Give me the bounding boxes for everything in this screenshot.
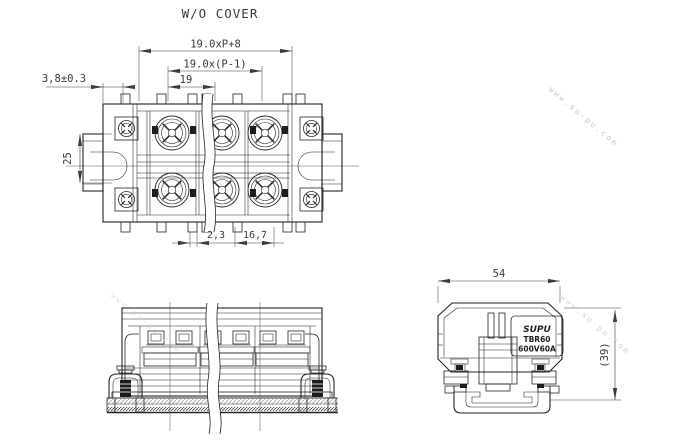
front-break [206, 303, 221, 434]
dim-end-offset-label: 3,8±0.3 [42, 73, 86, 85]
plan-terminal-screws [155, 116, 282, 207]
watermark-text: www.su-pu.com [109, 291, 183, 355]
watermark-text: www.su-pu.com [547, 85, 621, 149]
plan-right-flange [298, 134, 342, 191]
front-end-stop-left [107, 366, 144, 412]
technical-drawing: W/O COVER [0, 0, 680, 440]
drawing-sheet: W/O COVER [0, 0, 680, 440]
dim-total-length-label: 19.0xP+8 [190, 39, 241, 51]
dim-height-label: (39) [599, 342, 611, 367]
watermark-text: www.su-pu.com [559, 293, 633, 357]
dim-pole-span-label: 19.0x(P-1) [183, 59, 246, 71]
side-clamp-screws [451, 359, 549, 372]
front-base [112, 392, 332, 398]
product-series-label: TBR60 [523, 335, 550, 344]
dim-opening-width-label: 16,7 [243, 230, 267, 241]
front-din-rail [107, 398, 338, 413]
plan-left-flange [83, 134, 127, 191]
side-view: SUPU TBR60 600V60A [438, 303, 563, 413]
plan-view [66, 94, 359, 232]
front-lower-lines [124, 368, 320, 386]
dim-width-label: 54 [493, 268, 506, 280]
side-contact-prongs [488, 313, 505, 338]
product-rating-label: 600V60A [518, 345, 556, 354]
dim-pitch-label: 19 [180, 74, 193, 86]
dim-barrier-width-label: 2,3 [207, 230, 225, 241]
drawing-title: W/O COVER [182, 6, 259, 21]
side-feet [444, 371, 556, 384]
product-brand-label: SUPU [523, 325, 551, 335]
plan-break [202, 94, 216, 232]
dim-row-spacing-label: 25 [62, 152, 74, 165]
product-label: SUPU TBR60 600V60A [511, 316, 563, 356]
front-end-stop-right [299, 366, 336, 412]
side-din-rail [445, 384, 559, 413]
